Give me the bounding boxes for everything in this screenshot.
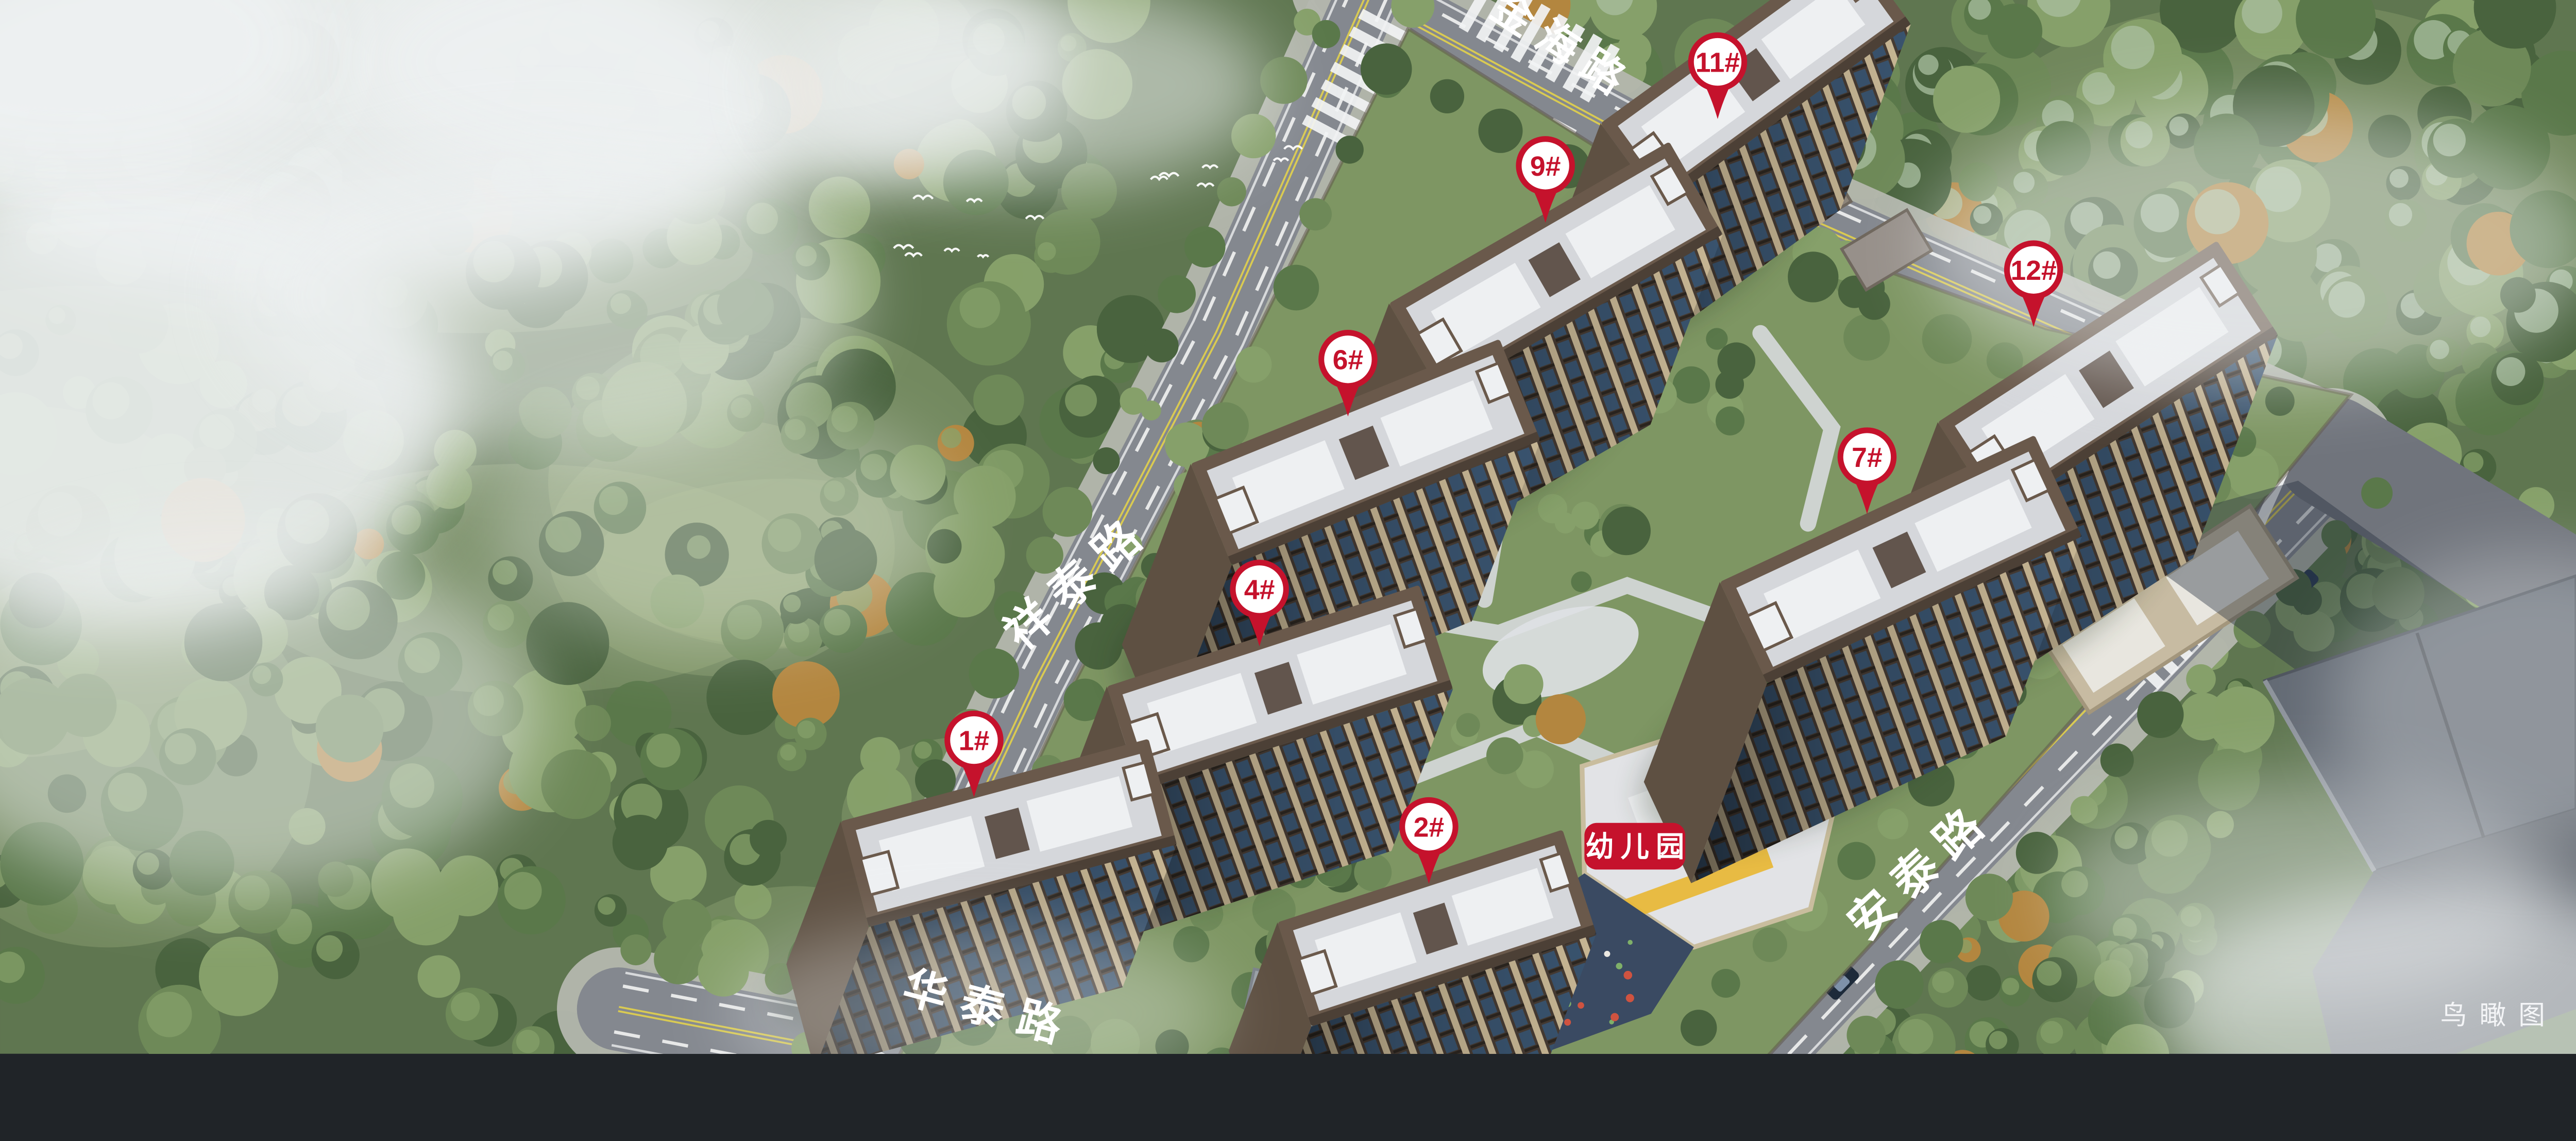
marker-label: 1# (959, 726, 990, 756)
marker-label: 2# (1414, 813, 1445, 843)
mist (476, 400, 952, 647)
view-caption: 鸟瞰图 (2441, 1000, 2557, 1030)
marker-label: 11# (1696, 47, 1740, 78)
marker-label: 7# (1852, 443, 1883, 473)
bird-icon (978, 255, 989, 257)
marker-label: 6# (1333, 345, 1364, 376)
marker-label: 12# (2010, 256, 2056, 286)
marker-label: 4# (1244, 575, 1275, 606)
bird-eye-view-scene: 金海路祥泰路华泰路安泰路幼儿园11#9#12#6#7#4#1#2#鸟瞰图 (0, 0, 2576, 1054)
aerial-rendering: 金海路祥泰路华泰路安泰路幼儿园11#9#12#6#7#4#1#2#鸟瞰图 (0, 0, 2576, 1054)
kindergarten-label-text: 幼儿园 (1585, 831, 1691, 863)
kindergarten-label: 幼儿园 (1584, 823, 1691, 870)
marker-label: 9# (1530, 152, 1561, 182)
